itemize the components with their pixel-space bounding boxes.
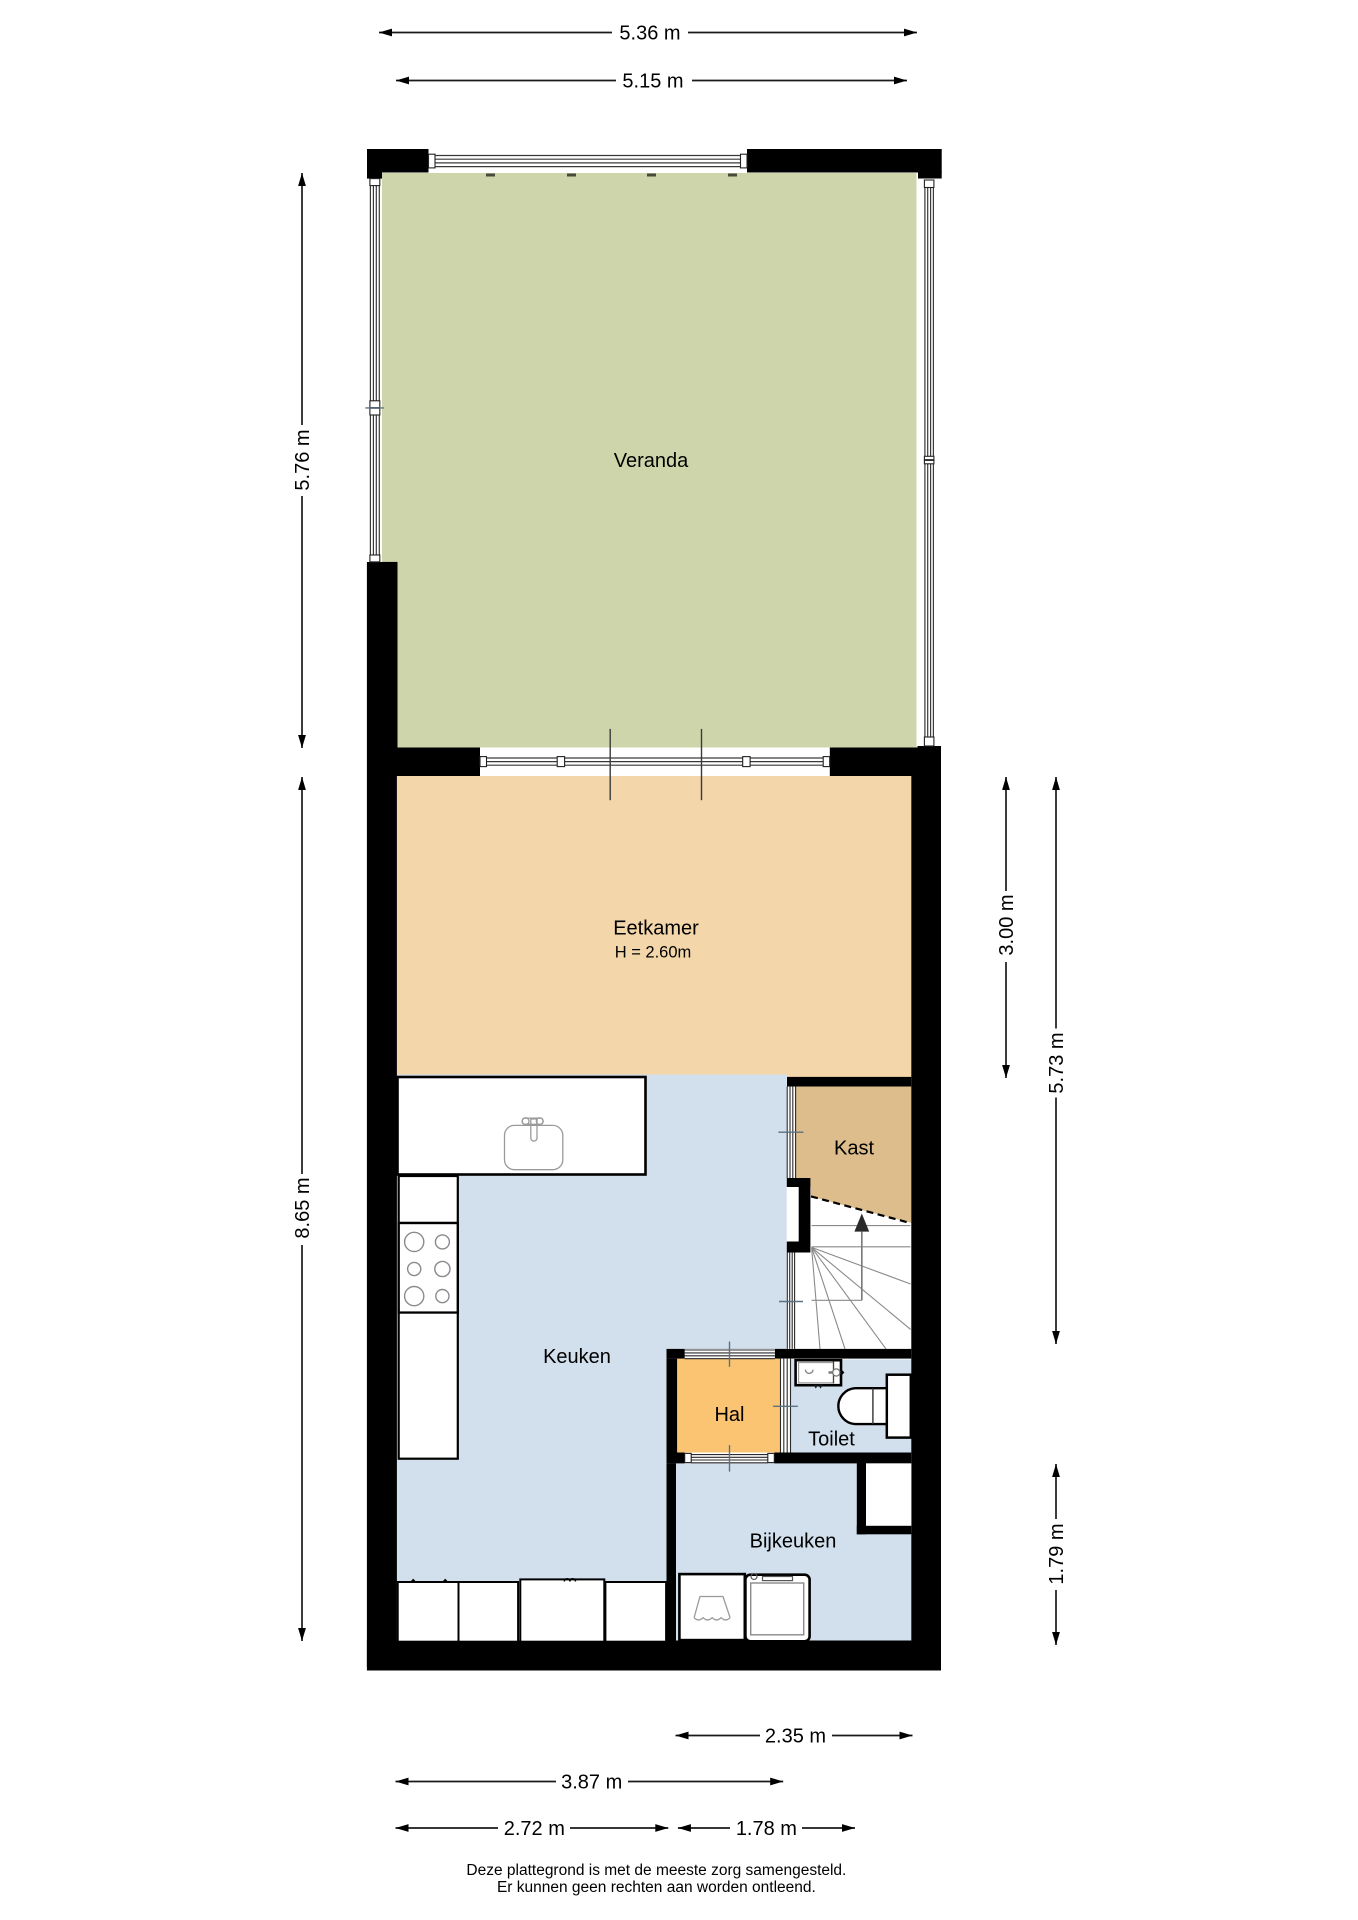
svg-text:8.65 m: 8.65 m: [292, 1177, 314, 1238]
svg-text:5.73 m: 5.73 m: [1046, 1032, 1068, 1093]
svg-text:Eetkamer: Eetkamer: [613, 918, 699, 940]
svg-text:Veranda: Veranda: [614, 450, 689, 472]
svg-text:H = 2.60m: H = 2.60m: [615, 944, 692, 962]
svg-text:Bijkeuken: Bijkeuken: [750, 1531, 837, 1553]
svg-text:3.87 m: 3.87 m: [561, 1772, 622, 1794]
svg-text:1.79 m: 1.79 m: [1046, 1523, 1068, 1584]
svg-text:2.72 m: 2.72 m: [504, 1818, 565, 1840]
svg-text:5.76 m: 5.76 m: [292, 429, 314, 490]
svg-text:Deze plattegrond is met de mee: Deze plattegrond is met de meeste zorg s…: [466, 1862, 846, 1879]
svg-text:Keuken: Keuken: [543, 1346, 611, 1368]
svg-text:5.15 m: 5.15 m: [622, 71, 683, 93]
svg-text:Er kunnen geen rechten aan wor: Er kunnen geen rechten aan worden ontlee…: [497, 1879, 816, 1896]
svg-text:5.36 m: 5.36 m: [619, 23, 680, 45]
svg-text:2.35 m: 2.35 m: [765, 1726, 826, 1748]
svg-text:Kast: Kast: [834, 1138, 874, 1160]
svg-text:3.00 m: 3.00 m: [996, 894, 1018, 955]
svg-text:Toilet: Toilet: [808, 1429, 855, 1451]
svg-text:Hal: Hal: [714, 1404, 744, 1426]
svg-text:1.78 m: 1.78 m: [736, 1818, 797, 1840]
